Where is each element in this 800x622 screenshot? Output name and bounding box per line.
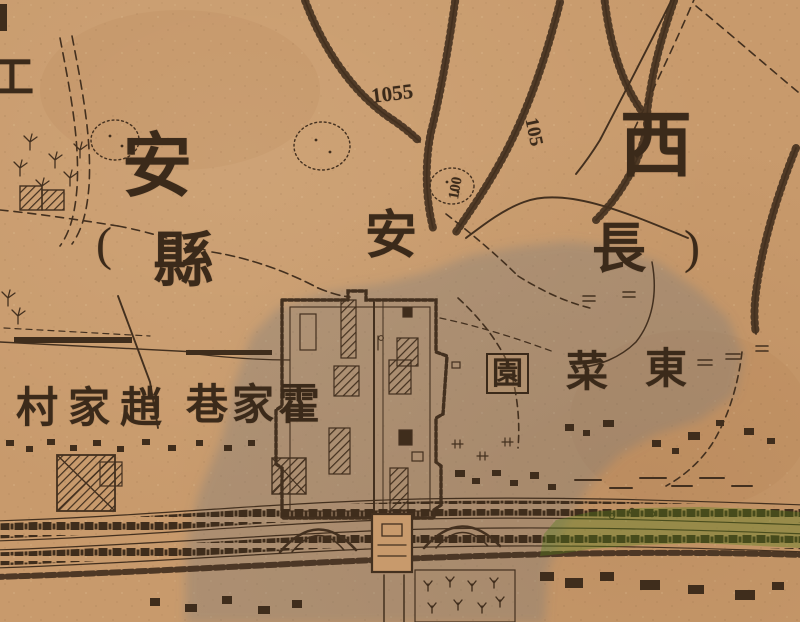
label-cai: 菜 bbox=[566, 352, 608, 394]
label-dong: 東 bbox=[645, 349, 687, 391]
contour-label-1055: 1055 bbox=[370, 81, 414, 107]
label-xian: 縣 bbox=[153, 231, 213, 291]
label-huojiaxiang: 巷家霍 bbox=[186, 385, 324, 427]
label-zhaojiacun: 村家趙 bbox=[16, 388, 172, 430]
label-an-small: 安 bbox=[365, 211, 417, 263]
label-yuan-boxed: 園 bbox=[486, 353, 529, 394]
label-xi: 西 bbox=[620, 110, 692, 182]
label-an-large: 安 bbox=[122, 133, 192, 203]
contour-label-105: 105 bbox=[521, 116, 546, 148]
historic-map-scan: 安 ( 縣 西 長 ) 安 村家趙 巷家霍 東 菜 園 工 1055 105 1… bbox=[0, 0, 800, 622]
label-paren-open: ( bbox=[96, 221, 112, 269]
label-edge-partial: 工 bbox=[0, 56, 34, 100]
label-paren-close: ) bbox=[684, 224, 700, 272]
label-chang: 長 bbox=[592, 222, 646, 276]
